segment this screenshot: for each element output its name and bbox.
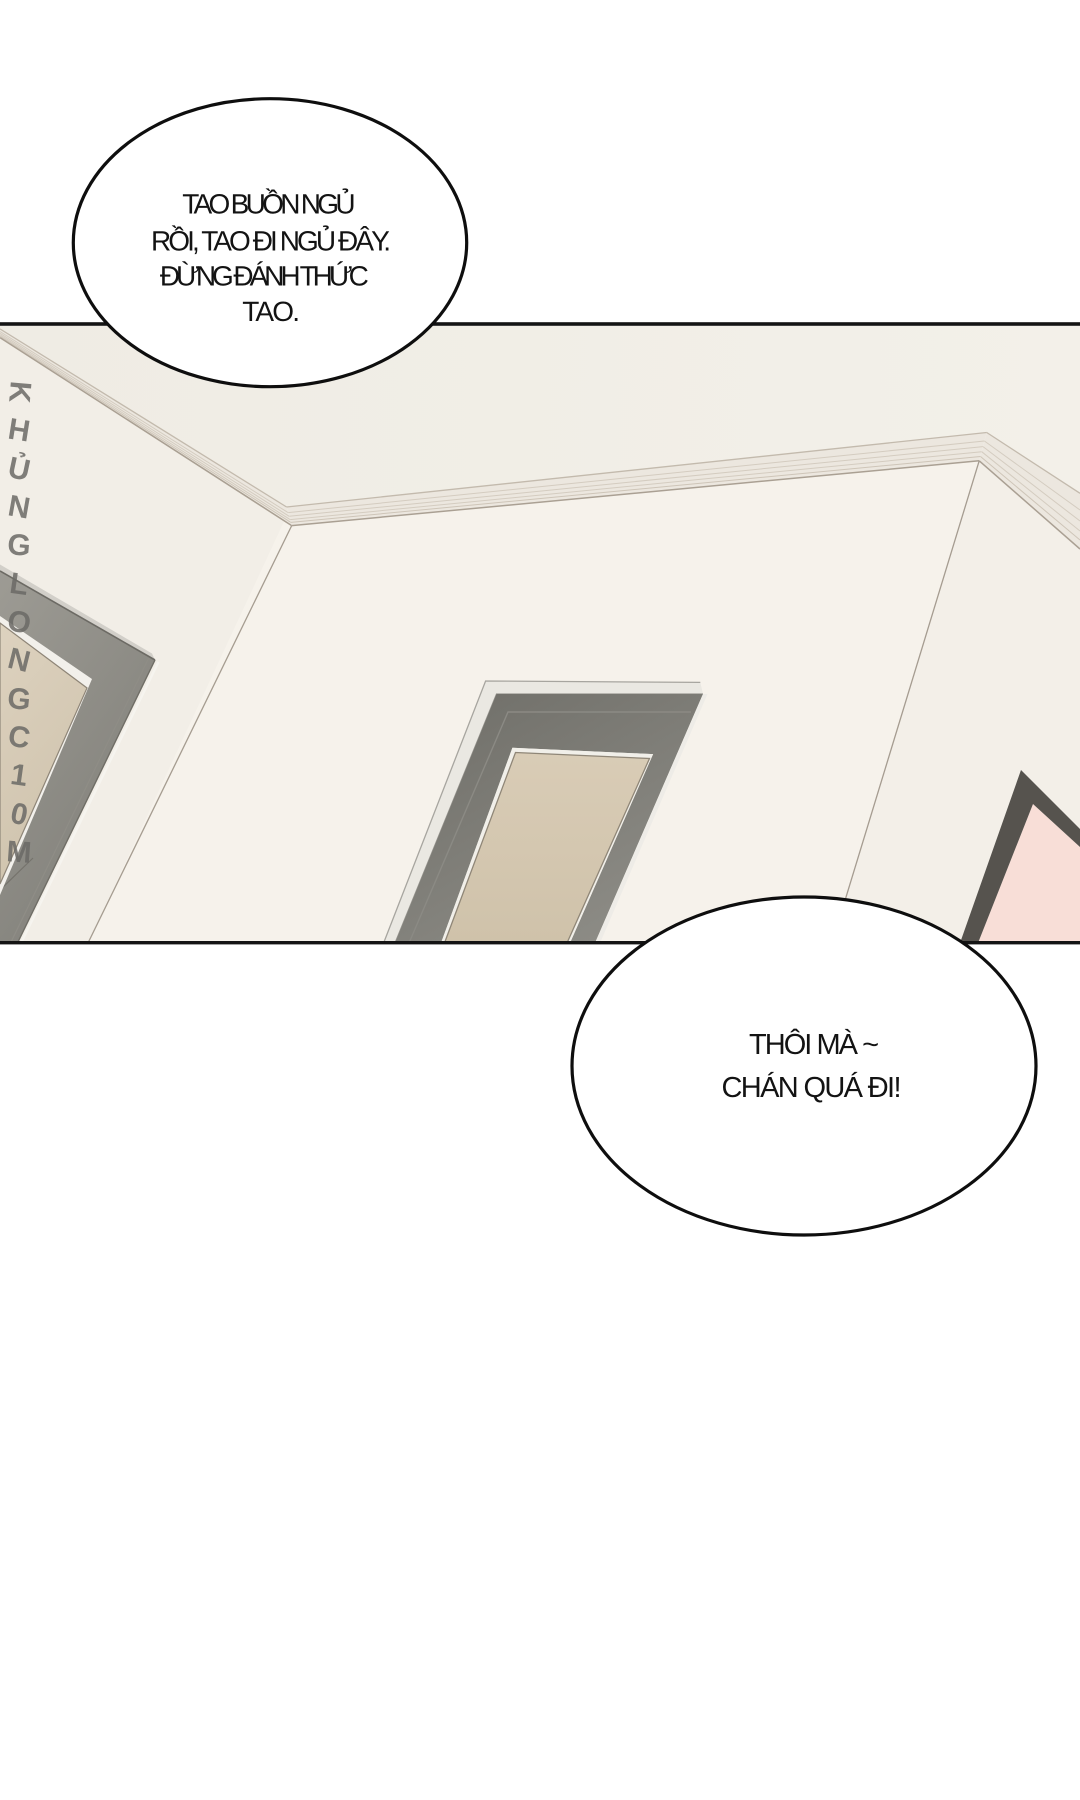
svg-text:THÔI MÀ ~: THÔI MÀ ~: [749, 1028, 879, 1061]
svg-text:K: K: [2, 380, 37, 405]
svg-text:ĐỪNG ĐÁNH THỨC: ĐỪNG ĐÁNH THỨC: [160, 261, 369, 292]
svg-text:TAO.: TAO.: [242, 296, 300, 327]
svg-text:RỒI, TAO ĐI NGỦ ĐÂY.: RỒI, TAO ĐI NGỦ ĐÂY.: [151, 225, 391, 257]
svg-text:M: M: [5, 835, 32, 870]
svg-text:TAO BUỒN NGỦ: TAO BUỒN NGỦ: [182, 188, 355, 220]
svg-text:G: G: [6, 682, 33, 717]
svg-text:G: G: [6, 528, 32, 563]
svg-text:CHÁN QUÁ ĐI!: CHÁN QUÁ ĐI!: [722, 1071, 902, 1104]
